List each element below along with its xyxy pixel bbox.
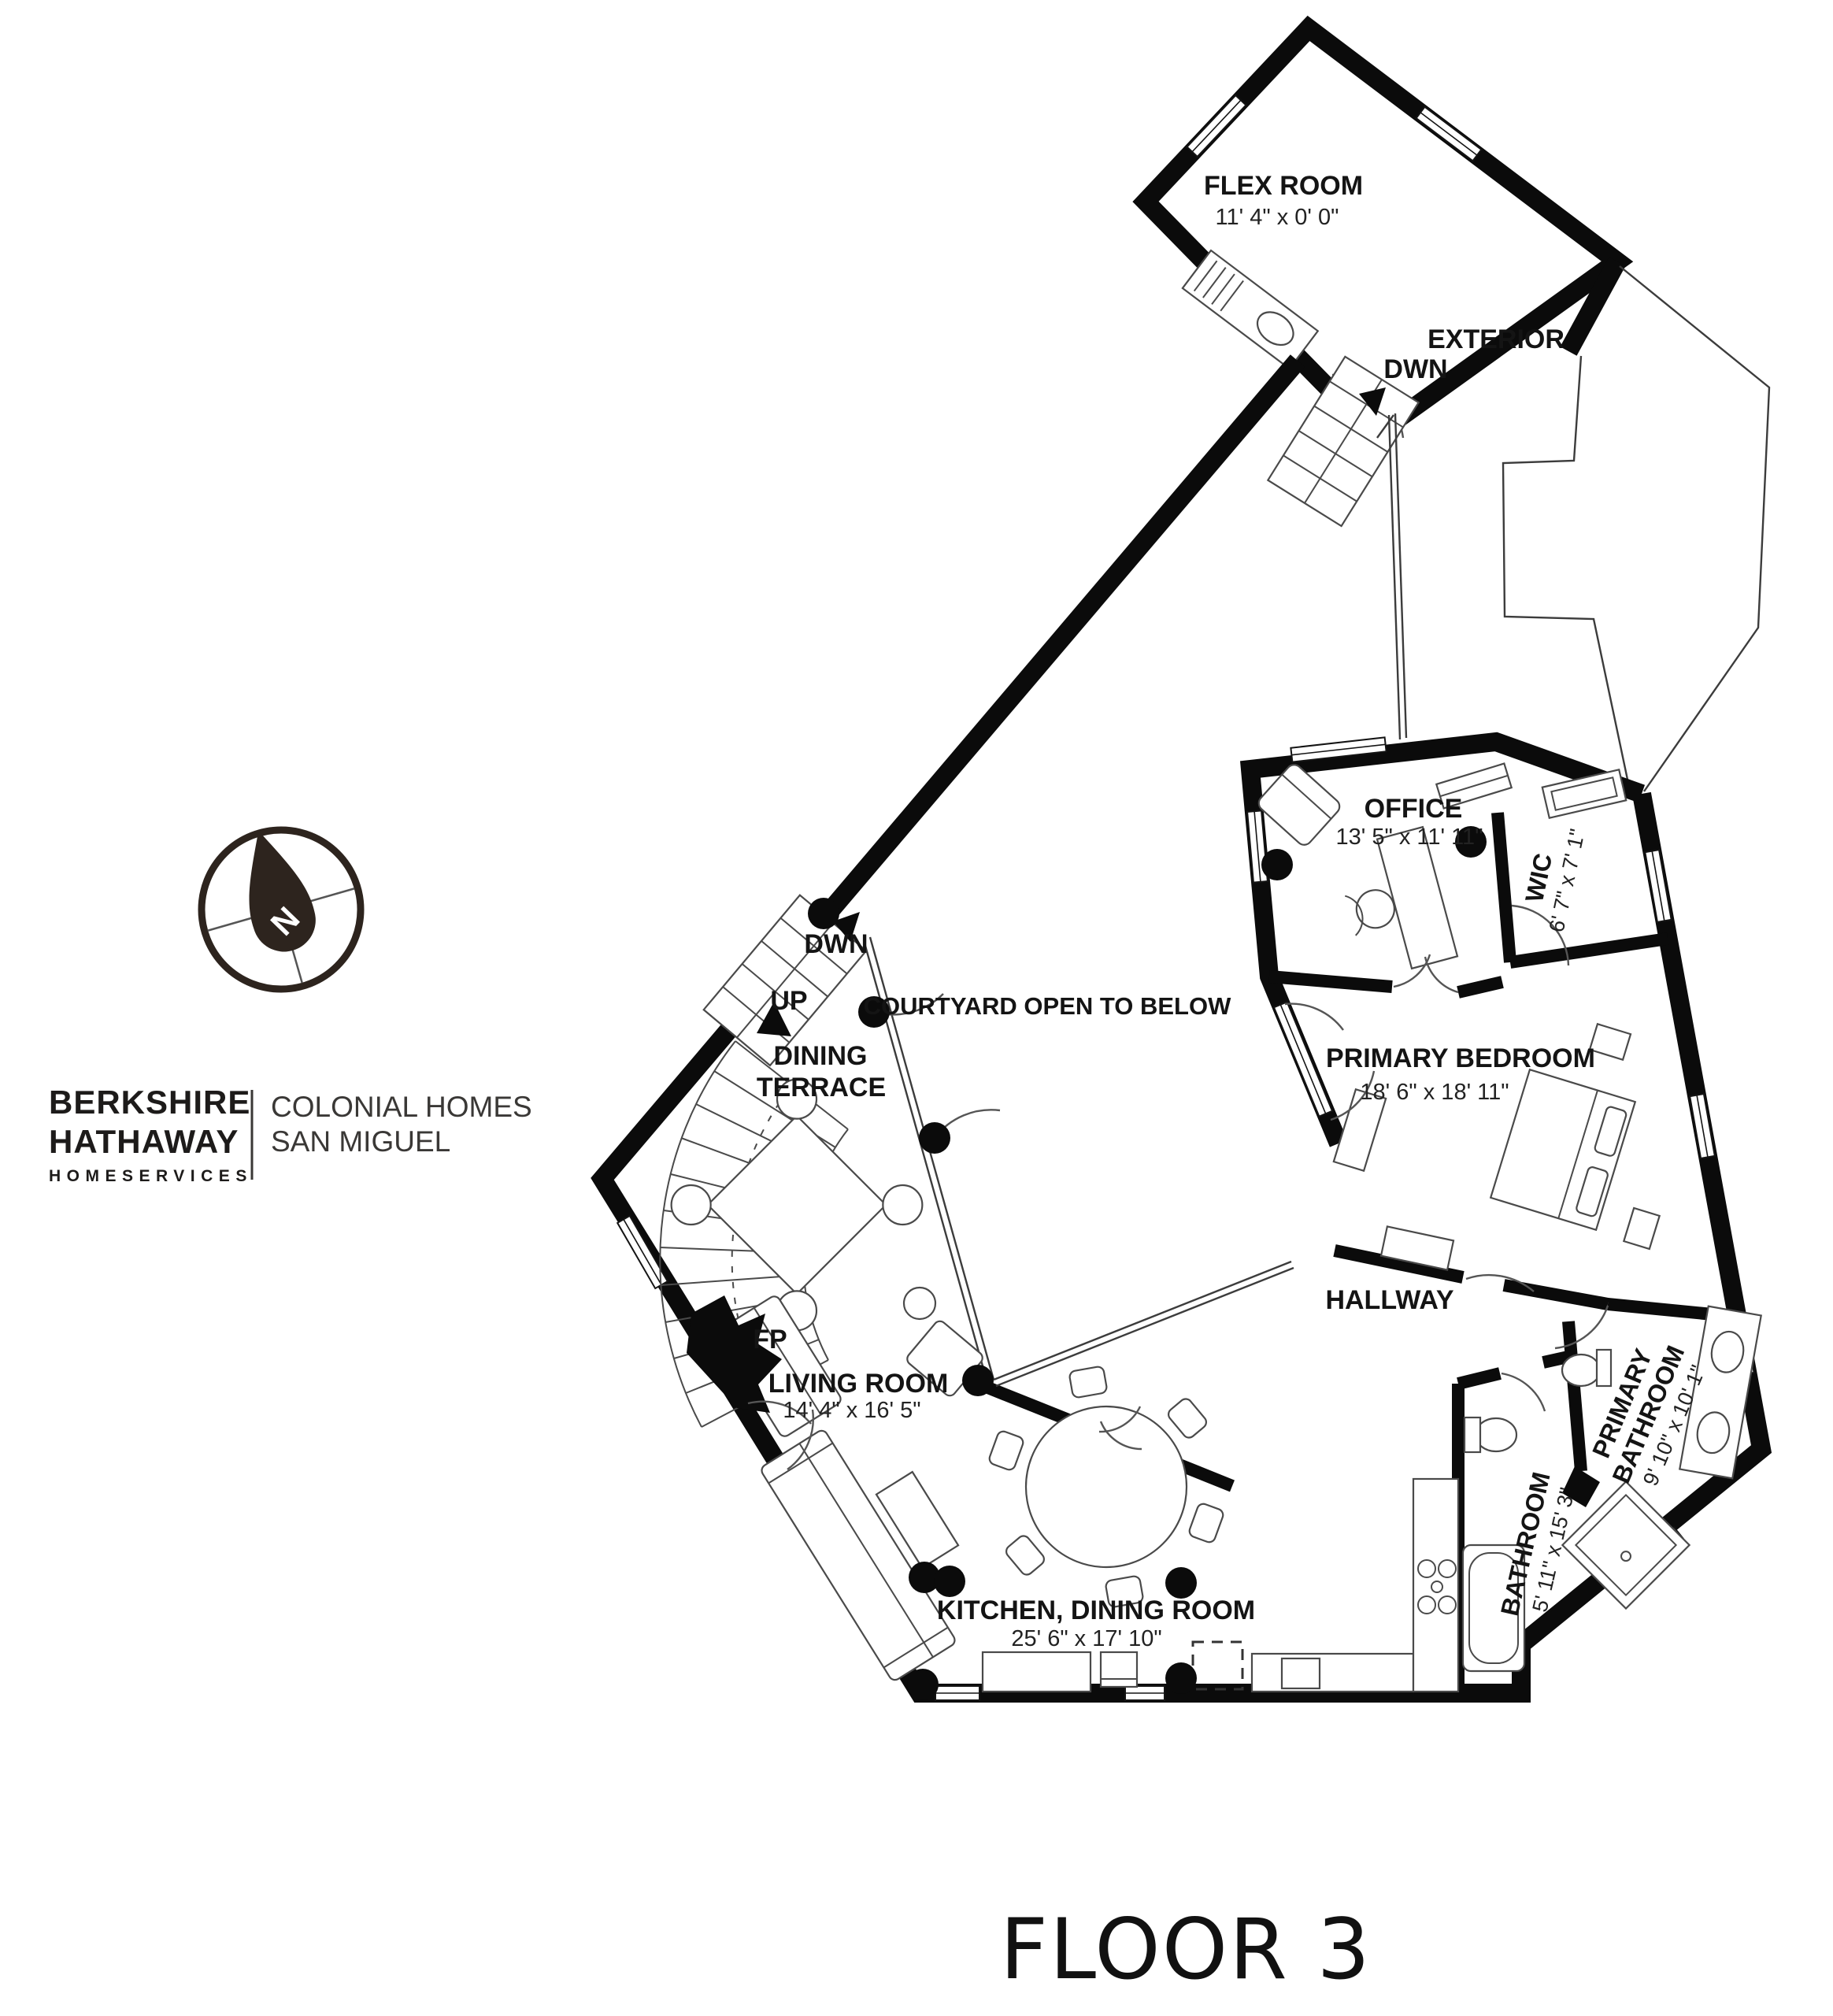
dining-terrace-label-line1: DINING: [774, 1041, 868, 1071]
wic-left-wall: [1498, 813, 1510, 962]
nightstand: [1590, 1024, 1631, 1059]
office-dims: 13' 5" x 11' 11": [1336, 825, 1483, 850]
brand-agency-line2: SAN MIGUEL: [271, 1125, 450, 1158]
flex-counter: [1183, 250, 1318, 369]
junction-dot: [1165, 1567, 1197, 1599]
dishwasher-dashed: [1193, 1642, 1242, 1689]
kitchen-counter-right: [1413, 1479, 1458, 1692]
kitchen-sink: [1282, 1658, 1320, 1688]
chair: [1004, 1533, 1046, 1577]
flex-room: [1146, 28, 1617, 438]
window: [1416, 107, 1482, 161]
junction-dot: [808, 898, 839, 929]
chair: [988, 1430, 1025, 1472]
dining-terrace: [663, 1071, 930, 1338]
nightstand: [1624, 1208, 1659, 1249]
floor-plan-page: FLEX ROOM 11' 4" x 0' 0" EXTERIOR DWN CO…: [0, 0, 1833, 2016]
bathroom-top-wall: [1458, 1373, 1500, 1384]
flex-room-walls: [1146, 28, 1617, 435]
chair: [1068, 1366, 1107, 1398]
compass: N: [185, 810, 376, 1004]
bench: [1542, 769, 1626, 817]
flex-room-label: FLEX ROOM: [1204, 171, 1363, 201]
door-arc: [1502, 1373, 1545, 1411]
courtyard-label: COURTYARD OPEN TO BELOW: [864, 992, 1231, 1020]
brand-line2: HATHAWAY: [49, 1123, 239, 1160]
kitchen-counter: [1252, 1654, 1413, 1692]
office-label: OFFICE: [1365, 794, 1463, 824]
side-table: [904, 1288, 935, 1319]
exterior-label: EXTERIOR: [1428, 324, 1565, 354]
kitchen-dining-label: KITCHEN, DINING ROOM: [937, 1595, 1255, 1625]
bed: [1490, 1069, 1635, 1230]
brand-line1: BERKSHIRE: [49, 1084, 250, 1121]
kitchen-island: [983, 1652, 1091, 1692]
wic-bottom-wall: [1510, 939, 1668, 962]
toilet: [1465, 1417, 1516, 1452]
terrace-table: [663, 1071, 930, 1338]
walkway-inner-line: [1503, 356, 1630, 791]
office-bottom-wall: [1458, 982, 1502, 992]
junction-dot: [934, 1566, 965, 1597]
stairs-up-label: UP: [770, 986, 807, 1016]
kitchen-dining-dims: 25' 6" x 17' 10": [1011, 1626, 1161, 1651]
office-bottom-wall: [1269, 976, 1392, 987]
stairs-down-top-label: DWN: [1383, 354, 1447, 384]
junction-dot: [907, 1669, 939, 1700]
window: [1187, 95, 1246, 157]
living-room-label: LIVING ROOM: [768, 1369, 949, 1399]
junction-dot: [962, 1365, 994, 1396]
stool: [1101, 1652, 1137, 1687]
bedroom-bottom-wall: [1504, 1285, 1608, 1304]
floor-plan-svg: FLEX ROOM 11' 4" x 0' 0" EXTERIOR DWN CO…: [0, 0, 1833, 2016]
junction-dot: [1165, 1662, 1197, 1694]
primary-bedroom-dims: 18' 6" x 18' 11": [1360, 1080, 1509, 1105]
stairs-down-mid-label: DWN: [804, 929, 868, 959]
junction-dot: [919, 1122, 950, 1154]
brand-logo: BERKSHIRE HATHAWAY HOMESERVICES COLONIAL…: [49, 1084, 532, 1185]
chair: [663, 1177, 719, 1233]
chair: [875, 1177, 931, 1233]
brand-line3: HOMESERVICES: [49, 1167, 253, 1185]
living-room-dims: 14' 4" x 16' 5": [783, 1398, 920, 1423]
room-labels: FLEX ROOM 11' 4" x 0' 0" EXTERIOR DWN CO…: [753, 171, 1713, 1651]
brand-agency-line1: COLONIAL HOMES: [271, 1091, 532, 1123]
floor-title: FLOOR 3: [1000, 1901, 1372, 1998]
chair: [1166, 1396, 1209, 1440]
primary-bedroom-label: PRIMARY BEDROOM: [1326, 1043, 1595, 1073]
junction-dot: [1261, 849, 1293, 880]
walkway-outer-line: [1620, 266, 1769, 791]
dining-terrace-label-line2: TERRACE: [757, 1073, 886, 1102]
wic: [1542, 769, 1626, 817]
hallway-label: HALLWAY: [1325, 1285, 1453, 1315]
fireplace-label: FP: [753, 1325, 787, 1354]
flex-room-dims: 11' 4" x 0' 0": [1216, 205, 1339, 230]
chair: [1188, 1503, 1225, 1544]
